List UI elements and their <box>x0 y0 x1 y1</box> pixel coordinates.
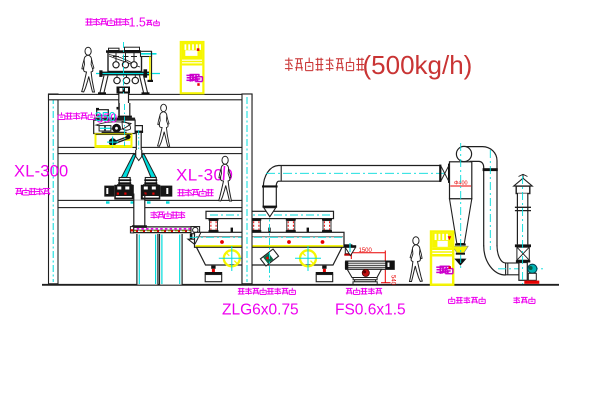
svg-text:ZLG6x0.75: ZLG6x0.75 <box>222 302 299 319</box>
svg-text:1.5: 1.5 <box>129 16 146 30</box>
svg-text:(500kg/h): (500kg/h) <box>363 50 473 80</box>
svg-text:1500: 1500 <box>359 248 373 254</box>
svg-text:XL-300: XL-300 <box>14 163 68 181</box>
svg-text:FS0.6x1.5: FS0.6x1.5 <box>335 302 406 319</box>
svg-text:350: 350 <box>95 110 116 124</box>
svg-text:540: 540 <box>390 275 396 286</box>
